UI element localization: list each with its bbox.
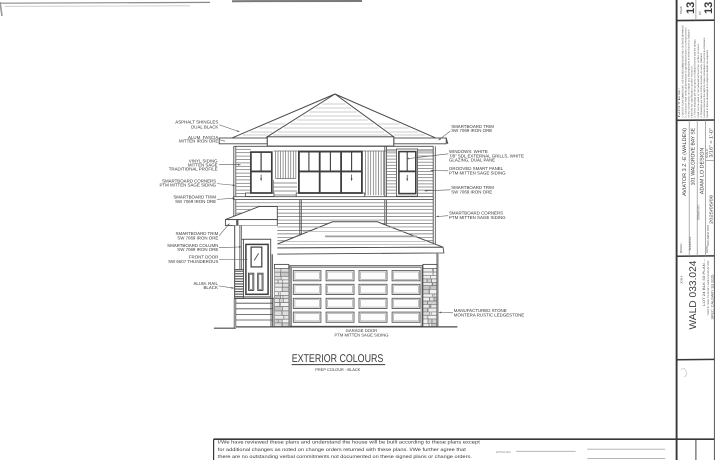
svg-text:PAGE: PAGE bbox=[679, 6, 683, 14]
svg-text:EXTERIOR COLOURS: EXTERIOR COLOURS bbox=[292, 353, 384, 365]
svg-text:MITTEN IRON ORE: MITTEN IRON ORE bbox=[179, 139, 218, 144]
svg-text:ADDRESS:: ADDRESS: bbox=[688, 236, 692, 251]
svg-text:LOT 24 BLK 33 PLAN --: LOT 24 BLK 33 PLAN -- bbox=[702, 259, 706, 306]
svg-text:PTM MITTEN SAGE SIDING: PTM MITTEN SAGE SIDING bbox=[449, 170, 506, 175]
svg-text:13: 13 bbox=[703, 2, 715, 14]
svg-text:BLACK: BLACK bbox=[203, 285, 217, 290]
svg-text:SW 6507 THUNDEROUS: SW 6507 THUNDEROUS bbox=[168, 259, 218, 264]
svg-text:SW 7069 IRON ORE: SW 7069 IRON ORE bbox=[175, 199, 216, 204]
svg-text:there are no outstanding verba: there are no outstanding verbal commitme… bbox=[218, 454, 472, 459]
svg-text:SW 7069 IRON ORE: SW 7069 IRON ORE bbox=[177, 247, 218, 252]
svg-text:PREP COLOUR - BLACK: PREP COLOUR - BLACK bbox=[315, 367, 360, 372]
svg-text:I/We have reviewed these plans: I/We have reviewed these plans and under… bbox=[218, 440, 481, 445]
svg-text:MODEL:: MODEL: bbox=[679, 242, 683, 253]
svg-text:13: 13 bbox=[685, 2, 697, 14]
svg-text:found in these drawings & to i: found in these drawings & to improve det… bbox=[706, 49, 709, 117]
svg-text:JOB #: JOB # bbox=[679, 275, 683, 284]
svg-text:APPROVED: APPROVED bbox=[496, 451, 511, 454]
svg-text:PTM MITTEN SAGE SIDING: PTM MITTEN SAGE SIDING bbox=[160, 183, 217, 188]
svg-text:DOCUMENT EDIT: DOCUMENT EDIT bbox=[706, 225, 710, 246]
svg-text:101 WALGROVE BAY SE: 101 WALGROVE BAY SE bbox=[691, 127, 697, 185]
svg-text:for additional changes as note: for additional changes as noted on chang… bbox=[218, 447, 467, 452]
svg-text:PTM MITTEN SAGE SIDING: PTM MITTEN SAGE SIDING bbox=[335, 332, 389, 337]
svg-text:SPEC: CALGARY S3 2025: SPEC: CALGARY S3 2025 bbox=[710, 274, 714, 319]
svg-text:MONTERA RUSTIC LEDGESTONE: MONTERA RUSTIC LEDGESTONE bbox=[454, 312, 524, 317]
svg-text:WALD 033.024: WALD 033.024 bbox=[688, 260, 699, 330]
svg-text:SW 7069 IRON ORE: SW 7069 IRON ORE bbox=[451, 189, 492, 194]
svg-text:AVIATOR 3 Z -E (WALDEN): AVIATOR 3 Z -E (WALDEN) bbox=[682, 128, 688, 196]
svg-text:2025/05/08: 2025/05/08 bbox=[709, 194, 714, 224]
svg-text:OF: OF bbox=[698, 11, 702, 15]
svg-text:3/16" = 1'-0": 3/16" = 1'-0" bbox=[708, 128, 713, 158]
svg-text:TRADITIONAL PROFILE: TRADITIONAL PROFILE bbox=[169, 166, 218, 171]
svg-text:GLAZING, DUAL PANE: GLAZING, DUAL PANE bbox=[449, 158, 495, 163]
svg-text:SW 7069 IRON ORE: SW 7069 IRON ORE bbox=[451, 128, 492, 133]
svg-text:DRAWN BY:: DRAWN BY: bbox=[696, 204, 700, 220]
svg-text:PTM MITTEN SAGE SIDING: PTM MITTEN SAGE SIDING bbox=[449, 215, 506, 220]
svg-text:DUAL BLACK: DUAL BLACK bbox=[191, 124, 218, 129]
svg-text:SW 7069 IRON ORE: SW 7069 IRON ORE bbox=[177, 235, 218, 240]
